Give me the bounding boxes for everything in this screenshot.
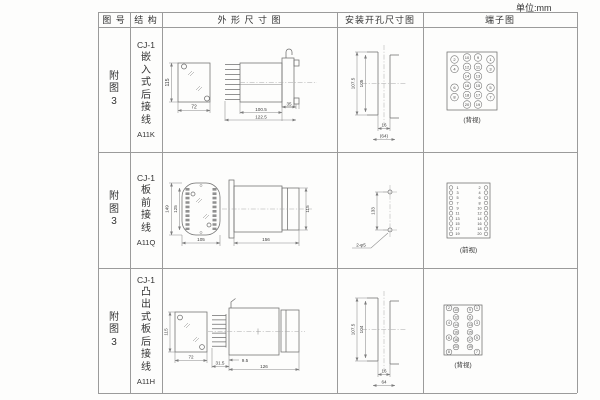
svg-text:10: 10 [454, 308, 458, 312]
svg-text:20: 20 [477, 232, 481, 236]
svg-text:5: 5 [456, 196, 458, 200]
cutout-shape: 107.5 104 16 64 [351, 291, 407, 386]
svg-text:1: 1 [456, 186, 458, 190]
structure-label: 嵌入式后接线 [140, 52, 152, 127]
svg-text:7: 7 [489, 95, 492, 100]
dim-label: 107.5 [351, 323, 356, 335]
dim-label: 107.5 [351, 77, 356, 89]
svg-text:19: 19 [476, 102, 481, 107]
dim-label: 115 [165, 78, 171, 86]
dim-label: 35 [286, 102, 292, 107]
datasheet-page: 单位:mm 图 号 结 构 外 形 尺 寸 图 安装开孔尺寸图 端子图 附图3 … [0, 0, 600, 400]
svg-text:19: 19 [468, 345, 472, 349]
svg-text:14: 14 [465, 74, 470, 79]
outline-drawing-row1: 115 72 35 100.5 122.5 [162, 27, 337, 152]
model-code: A11Q [137, 238, 156, 247]
svg-text:13: 13 [468, 323, 472, 327]
svg-text:10: 10 [465, 55, 470, 60]
svg-text:6: 6 [453, 85, 456, 90]
svg-text:3: 3 [476, 321, 478, 325]
figure-no-cell-row1: 附图3 [98, 27, 130, 152]
dim-label: 104 [359, 325, 364, 333]
side-view: 115 156 [222, 180, 312, 246]
svg-text:11: 11 [476, 64, 481, 69]
grid-line [577, 12, 578, 393]
terminal-diagram-row1: 1091211141316151817201924681357 (背视) [423, 27, 577, 152]
svg-text:10: 10 [477, 206, 481, 210]
terminal-circles: 1091211141316151817201924681357 [451, 54, 495, 109]
dim-label: 122.5 [255, 115, 267, 120]
view-label: (背视) [454, 360, 471, 369]
svg-text:9: 9 [477, 55, 480, 60]
view-label: (背视) [463, 115, 480, 124]
series-label: CJ-1 [137, 275, 155, 285]
header-mounting-dims: 安装开孔尺寸图 [337, 13, 423, 26]
svg-text:4: 4 [448, 321, 450, 325]
svg-text:4: 4 [478, 191, 480, 195]
svg-text:17: 17 [468, 338, 472, 342]
svg-text:9: 9 [469, 308, 471, 312]
svg-text:3: 3 [456, 191, 458, 195]
figure-no-cell-row3: 附图3 [98, 268, 130, 393]
outline-drawing-row2: 149 125 105 115 156 [162, 152, 337, 268]
svg-text:12: 12 [465, 64, 470, 69]
svg-text:9: 9 [456, 206, 458, 210]
dim-label: (64) [380, 134, 389, 139]
svg-text:15: 15 [468, 330, 472, 334]
dim-label: 64 [381, 380, 387, 385]
dim-label: 133 [371, 207, 376, 215]
dim-label: 100.5 [255, 107, 267, 112]
dim-label: 72 [191, 105, 197, 111]
svg-text:20: 20 [465, 102, 470, 107]
series-label: CJ-1 [137, 40, 155, 50]
side-view: 35 100.5 122.5 [225, 49, 317, 121]
terminal-circles: 1012141618209111315171924681357 [446, 305, 480, 355]
side-view: 31.5 9.5 126 [208, 299, 305, 372]
grid-line [98, 393, 577, 394]
dim-label: 126 [260, 364, 268, 369]
model-code: A11H [137, 377, 155, 386]
svg-text:13: 13 [455, 217, 459, 221]
svg-text:7: 7 [456, 201, 458, 205]
dim-label: 125 [173, 205, 178, 213]
header-figure-no: 图 号 [98, 13, 130, 26]
mounting-drawing-row1: 107.5 105 16 (64) [337, 27, 423, 152]
outline-drawing-row3: 115 72 31.5 9.5 126 [162, 268, 337, 393]
svg-text:15: 15 [476, 83, 481, 88]
svg-text:11: 11 [456, 212, 460, 216]
svg-text:18: 18 [465, 93, 470, 98]
dim-label: 9.5 [242, 358, 249, 363]
structure-cell-row3: CJ-1 凸出式板后接线 A11H [130, 268, 162, 393]
svg-text:12: 12 [477, 212, 481, 216]
structure-label: 凸出式板后接线 [140, 287, 152, 375]
svg-text:1: 1 [476, 306, 478, 310]
svg-text:12: 12 [454, 316, 458, 320]
svg-text:3: 3 [489, 66, 492, 71]
front-view: 115 72 [164, 312, 208, 363]
svg-text:16: 16 [477, 222, 481, 226]
structure-label: 板前接线 [140, 185, 152, 235]
dim-label: 105 [359, 79, 364, 87]
terminal-diagram-row3: 1012141618209111315171924681357 (背视) [423, 268, 577, 393]
model-code: A11K [137, 130, 155, 139]
svg-text:20: 20 [454, 345, 458, 349]
svg-text:1: 1 [489, 57, 492, 62]
figure-no-cell-row2: 附图3 [98, 152, 130, 268]
dim-label: 16 [381, 123, 387, 128]
svg-text:8: 8 [478, 201, 480, 205]
header-structure: 结 构 [130, 13, 162, 26]
dim-label: 31.5 [216, 361, 225, 366]
dim-label: 149 [165, 205, 170, 213]
mounting-drawing-row3: 107.5 104 16 64 [337, 268, 423, 393]
series-label: CJ-1 [137, 173, 155, 183]
svg-text:2: 2 [448, 306, 450, 310]
svg-text:11: 11 [468, 316, 472, 320]
svg-text:18: 18 [454, 338, 458, 342]
dim-label: 115 [164, 328, 169, 336]
hole-pattern: 133 2-φ5 [352, 185, 397, 248]
svg-text:8: 8 [453, 95, 456, 100]
svg-text:17: 17 [455, 227, 459, 231]
header-terminal-diagram: 端子图 [423, 13, 577, 26]
dim-label: 2-φ5 [356, 243, 366, 248]
svg-text:17: 17 [476, 93, 481, 98]
terminal-box [447, 183, 490, 238]
front-view: 115 72 [165, 63, 210, 113]
dim-label: 16 [381, 369, 387, 374]
svg-text:2: 2 [453, 57, 456, 62]
dim-label: 115 [305, 205, 310, 213]
view-label: (前视) [460, 245, 477, 254]
dim-label: 156 [262, 237, 270, 242]
dim-label: 72 [188, 355, 194, 360]
svg-text:16: 16 [454, 330, 458, 334]
structure-cell-row2: CJ-1 板前接线 A11Q [130, 152, 162, 268]
dim-label: 105 [197, 237, 205, 242]
svg-text:16: 16 [465, 83, 470, 88]
front-view: 149 125 105 [165, 183, 221, 246]
terminal-box [444, 305, 482, 355]
svg-text:15: 15 [455, 222, 459, 226]
cutout-shape: 107.5 105 16 (64) [351, 45, 407, 140]
svg-text:2: 2 [478, 186, 480, 190]
structure-cell-row1: CJ-1 嵌入式后接线 A11K [130, 27, 162, 152]
svg-text:18: 18 [477, 227, 481, 231]
svg-text:5: 5 [476, 336, 478, 340]
svg-text:19: 19 [455, 232, 459, 236]
svg-text:6: 6 [448, 336, 450, 340]
terminal-diagram-row2: 1357911131517192468101214161820 (前视) [423, 152, 577, 268]
svg-text:7: 7 [476, 350, 478, 354]
svg-text:4: 4 [453, 66, 456, 71]
terminal-circles: 1357911131517192468101214161820 [449, 186, 488, 237]
header-outline-dims: 外 形 尺 寸 图 [162, 13, 337, 26]
svg-text:13: 13 [476, 74, 481, 79]
svg-text:8: 8 [448, 350, 450, 354]
svg-text:5: 5 [489, 85, 492, 90]
mounting-drawing-row2: 133 2-φ5 [337, 152, 423, 268]
svg-text:14: 14 [454, 323, 458, 327]
svg-text:6: 6 [478, 196, 480, 200]
svg-text:14: 14 [477, 217, 481, 221]
